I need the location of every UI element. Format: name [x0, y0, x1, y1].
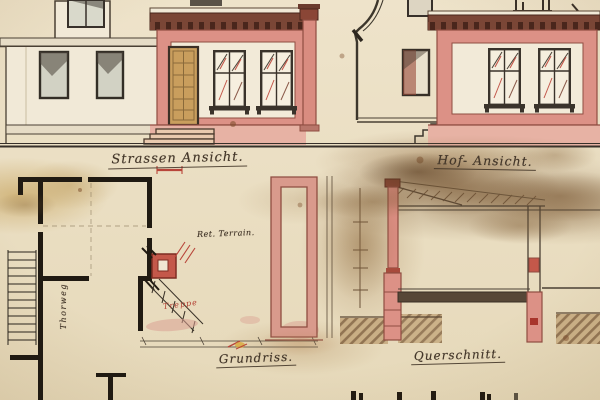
cropped-title-letter-tops	[351, 391, 518, 400]
passage-annotation: Thorweg	[59, 283, 68, 329]
courtyard-elevation-label: Hof- Ansicht.	[424, 152, 546, 171]
roof-finials	[513, 0, 578, 11]
ground-hatch-left	[340, 318, 388, 344]
plan-walls	[10, 177, 152, 400]
street-elevation-red-house	[144, 0, 315, 145]
street-window-left	[214, 51, 245, 107]
plan-pencil-lines	[43, 183, 146, 276]
plan-section-wall	[265, 176, 368, 340]
ground-hatch-mid	[398, 314, 442, 343]
section-floor-slab	[398, 292, 530, 302]
cross-section-label: Querschnitt.	[400, 346, 516, 365]
section-right-pier	[527, 206, 542, 342]
courtyard-gable-house	[353, 0, 438, 143]
architectural-drawing-sheet: Strassen Ansicht. Hof- Ansicht. Grundris…	[0, 0, 600, 400]
plan-red-dimension-marks	[157, 166, 195, 263]
ground-hatch-right	[556, 314, 600, 344]
floor-plan-label: Grundriss.	[210, 349, 303, 368]
plan-dimension-lines	[140, 337, 318, 347]
cross-section	[340, 179, 600, 344]
plan-staircase	[8, 250, 36, 345]
street-window-right	[261, 51, 292, 107]
street-elevation-left-house	[0, 0, 157, 143]
street-elevation-label: Strassen Ansicht.	[100, 149, 255, 169]
courtyard-window-left	[489, 49, 520, 105]
plan-red-note-mark	[228, 341, 247, 349]
drawing-canvas	[0, 0, 600, 400]
section-left-pier	[384, 179, 401, 340]
courtyard-elevation-red-house	[428, 0, 600, 146]
courtyard-window-right	[539, 49, 570, 105]
